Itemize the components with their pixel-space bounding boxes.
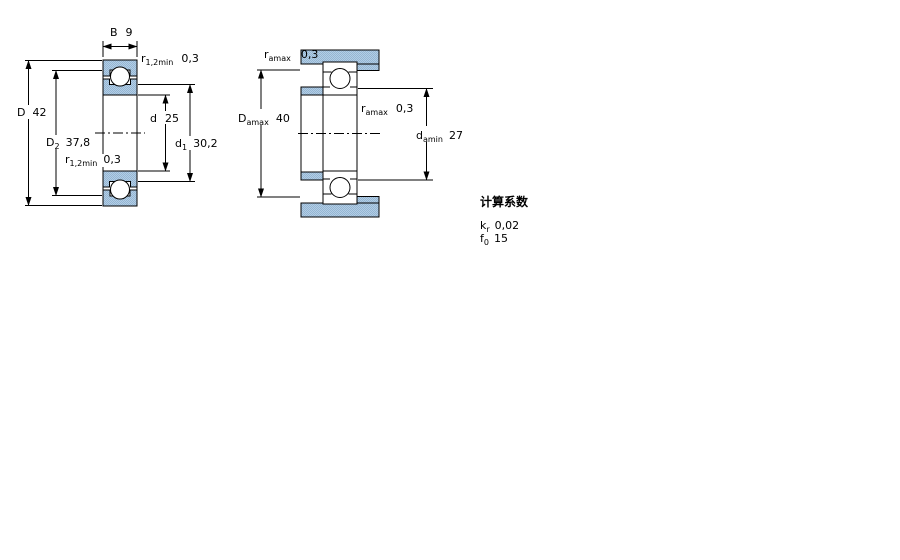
dimension-ramax-middle: ramax0,3: [361, 102, 413, 117]
dimension-Damax: Damax40: [235, 70, 300, 197]
dim-ra-mid-text: ramax0,3: [361, 102, 413, 117]
dim-r-top-text: r1,2min0,3: [141, 52, 199, 67]
bearing-outline: [298, 62, 382, 204]
housing-shoulder-bottom: [357, 197, 379, 204]
factor-f0: f015: [480, 232, 508, 247]
housing-shoulder-top: [357, 64, 379, 71]
technical-drawing: B9 r1,2min0,3 D42 D237,8 r1,2min0,3: [0, 0, 900, 560]
bearing-drawing-page: B9 r1,2min0,3 D42 D237,8 r1,2min0,3: [0, 0, 900, 560]
dim-D-text: D42: [17, 106, 46, 119]
dim-d-text: d25: [150, 112, 179, 125]
dim-B-text: B9: [110, 26, 133, 39]
figure-cross-section: B9 r1,2min0,3 D42 D237,8 r1,2min0,3: [14, 26, 218, 206]
bearing-section: [95, 60, 145, 206]
figure-mounting: ramax0,3 Damax40 ramax0,3 damin27: [235, 48, 467, 217]
dimension-r12min-bottom: r1,2min0,3: [63, 153, 121, 168]
ball-bottom: [330, 178, 350, 198]
dimension-r12min-top: r1,2min0,3: [141, 52, 199, 67]
dimension-D2: D237,8: [44, 71, 102, 196]
dimension-d1: d130,2: [138, 85, 218, 182]
dim-d1-text: d130,2: [175, 137, 218, 152]
ball-bottom: [111, 180, 130, 199]
calculation-factors: 计算系数 kr0,02 f015: [480, 194, 529, 247]
ball-top: [330, 69, 350, 89]
housing-bottom-band: [301, 203, 379, 217]
shaft-shoulder-bottom: [301, 172, 323, 180]
dim-ra-top-text: ramax0,3: [264, 48, 318, 63]
calculation-factors-title: 计算系数: [480, 194, 529, 209]
ball-top: [111, 67, 130, 86]
dim-D2-text: D237,8: [46, 136, 90, 151]
shaft-shoulder-top: [301, 87, 323, 95]
dimension-D: D42: [14, 61, 102, 206]
dimension-B: B9: [103, 26, 137, 57]
dimension-ramax-top: ramax0,3: [264, 48, 318, 63]
